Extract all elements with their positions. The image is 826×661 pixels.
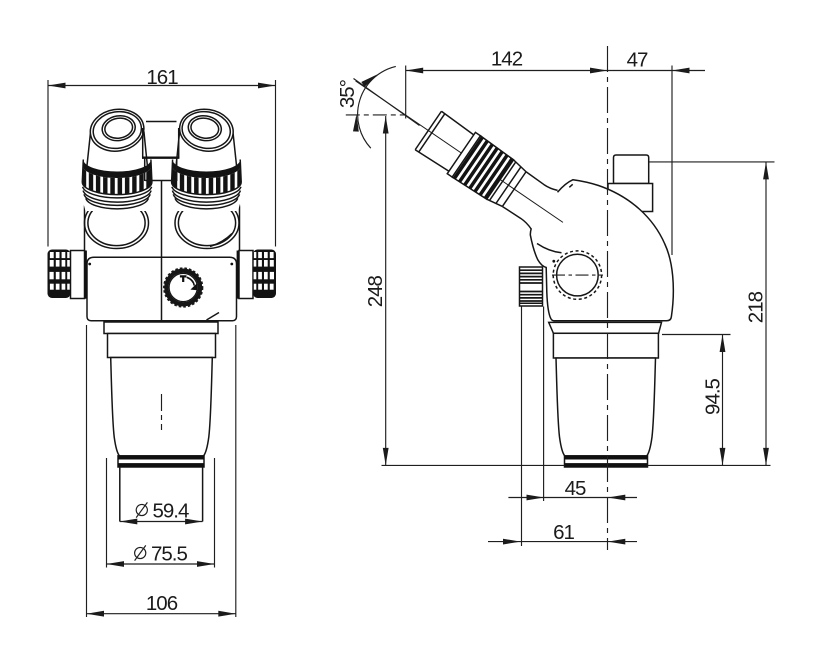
svg-text:142: 142 <box>491 48 523 71</box>
svg-text:106: 106 <box>146 592 178 615</box>
svg-text:61: 61 <box>553 521 574 544</box>
svg-text:47: 47 <box>627 49 648 72</box>
svg-text:161: 161 <box>146 66 178 89</box>
svg-text:94.5: 94.5 <box>702 378 725 414</box>
svg-text:75.5: 75.5 <box>151 543 187 566</box>
svg-text:218: 218 <box>745 291 768 323</box>
svg-text:248: 248 <box>364 276 387 308</box>
svg-text:35°: 35° <box>336 80 359 108</box>
svg-text:59.4: 59.4 <box>153 499 189 522</box>
svg-text:45: 45 <box>565 477 586 500</box>
